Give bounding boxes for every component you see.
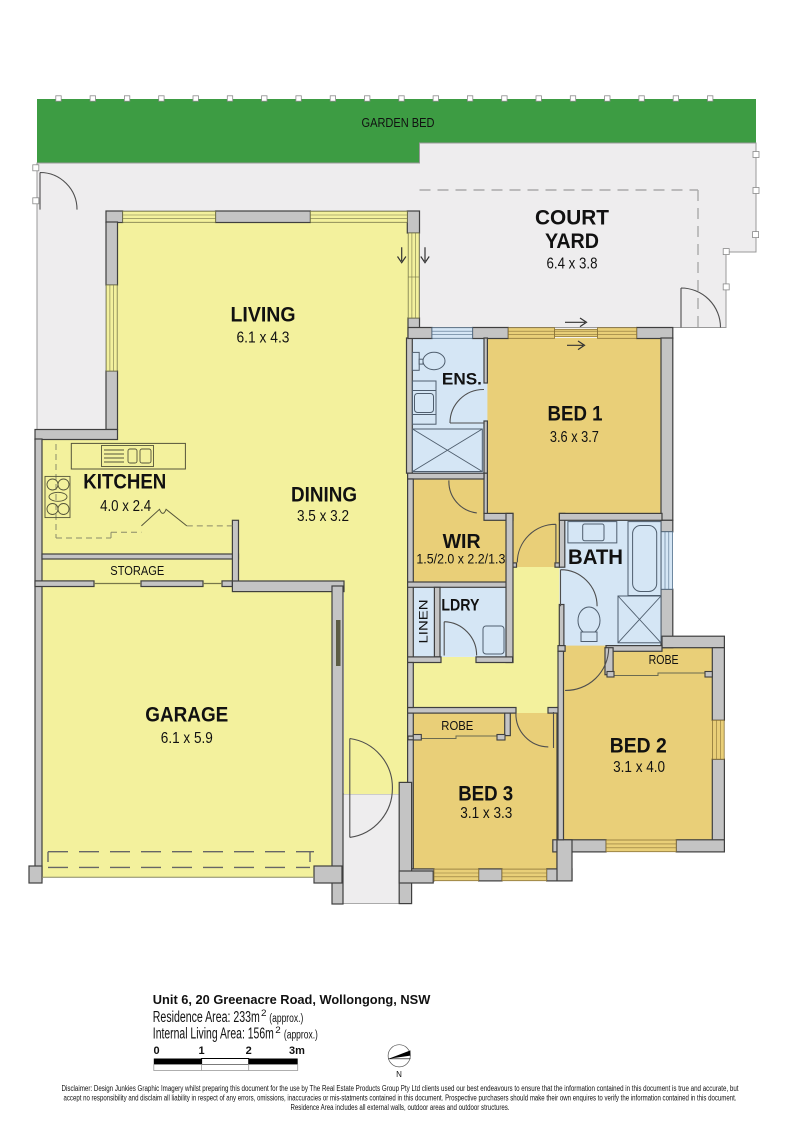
svg-text:ROBE: ROBE <box>441 718 473 733</box>
svg-text:Unit 6, 20 Greenacre Road, Wol: Unit 6, 20 Greenacre Road, Wollongong, N… <box>153 992 431 1007</box>
svg-text:Residence Area includes all ex: Residence Area includes all external wal… <box>291 1103 510 1112</box>
svg-text:LIVING: LIVING <box>231 304 296 327</box>
svg-text:BATH: BATH <box>568 546 623 569</box>
svg-text:(approx.): (approx.) <box>284 1030 318 1042</box>
svg-text:BED 3: BED 3 <box>458 782 513 805</box>
svg-text:4.0 x 2.4: 4.0 x 2.4 <box>100 498 151 515</box>
svg-text:STORAGE: STORAGE <box>110 563 164 578</box>
svg-text:BED 1: BED 1 <box>548 403 603 426</box>
svg-text:WIR: WIR <box>443 531 482 553</box>
svg-text:Disclaimer: Design Junkies Gra: Disclaimer: Design Junkies Graphic Image… <box>62 1084 740 1093</box>
svg-text:KITCHEN: KITCHEN <box>83 471 166 494</box>
svg-text:1.5/2.0 x 2.2/1.3: 1.5/2.0 x 2.2/1.3 <box>416 552 505 567</box>
svg-text:6.1 x 5.9: 6.1 x 5.9 <box>161 730 213 747</box>
svg-text:YARD: YARD <box>545 230 599 253</box>
svg-text:6.1 x 4.3: 6.1 x 4.3 <box>237 330 290 347</box>
svg-text:N: N <box>396 1070 402 1079</box>
svg-text:2: 2 <box>261 1008 267 1019</box>
svg-text:ROBE: ROBE <box>649 652 679 667</box>
svg-text:Residence Area: 233m: Residence Area: 233m <box>153 1009 260 1026</box>
svg-text:LINEN: LINEN <box>419 600 431 644</box>
svg-text:GARDEN BED: GARDEN BED <box>362 116 435 130</box>
svg-text:Internal Living Area: 156m: Internal Living Area: 156m <box>153 1026 274 1043</box>
svg-text:3m: 3m <box>289 1045 305 1057</box>
svg-text:2: 2 <box>275 1025 281 1036</box>
svg-text:BED 2: BED 2 <box>610 735 667 758</box>
svg-text:0: 0 <box>153 1045 159 1057</box>
svg-text:3.6 x 3.7: 3.6 x 3.7 <box>550 429 599 446</box>
svg-text:COURT: COURT <box>535 207 609 230</box>
svg-text:(approx.): (approx.) <box>269 1013 303 1025</box>
svg-text:1: 1 <box>199 1045 205 1057</box>
svg-text:GARAGE: GARAGE <box>145 704 228 727</box>
svg-text:DINING: DINING <box>291 483 357 506</box>
svg-text:6.4 x 3.8: 6.4 x 3.8 <box>547 256 598 273</box>
svg-text:ENS.: ENS. <box>442 371 482 389</box>
svg-text:2: 2 <box>246 1045 252 1057</box>
svg-text:accept no responsibility and d: accept no responsibility and disclaim al… <box>64 1094 737 1103</box>
svg-text:3.1 x 4.0: 3.1 x 4.0 <box>613 759 665 776</box>
svg-text:3.1 x 3.3: 3.1 x 3.3 <box>460 805 512 822</box>
svg-text:LDRY: LDRY <box>441 596 480 615</box>
svg-text:3.5 x 3.2: 3.5 x 3.2 <box>297 508 349 525</box>
